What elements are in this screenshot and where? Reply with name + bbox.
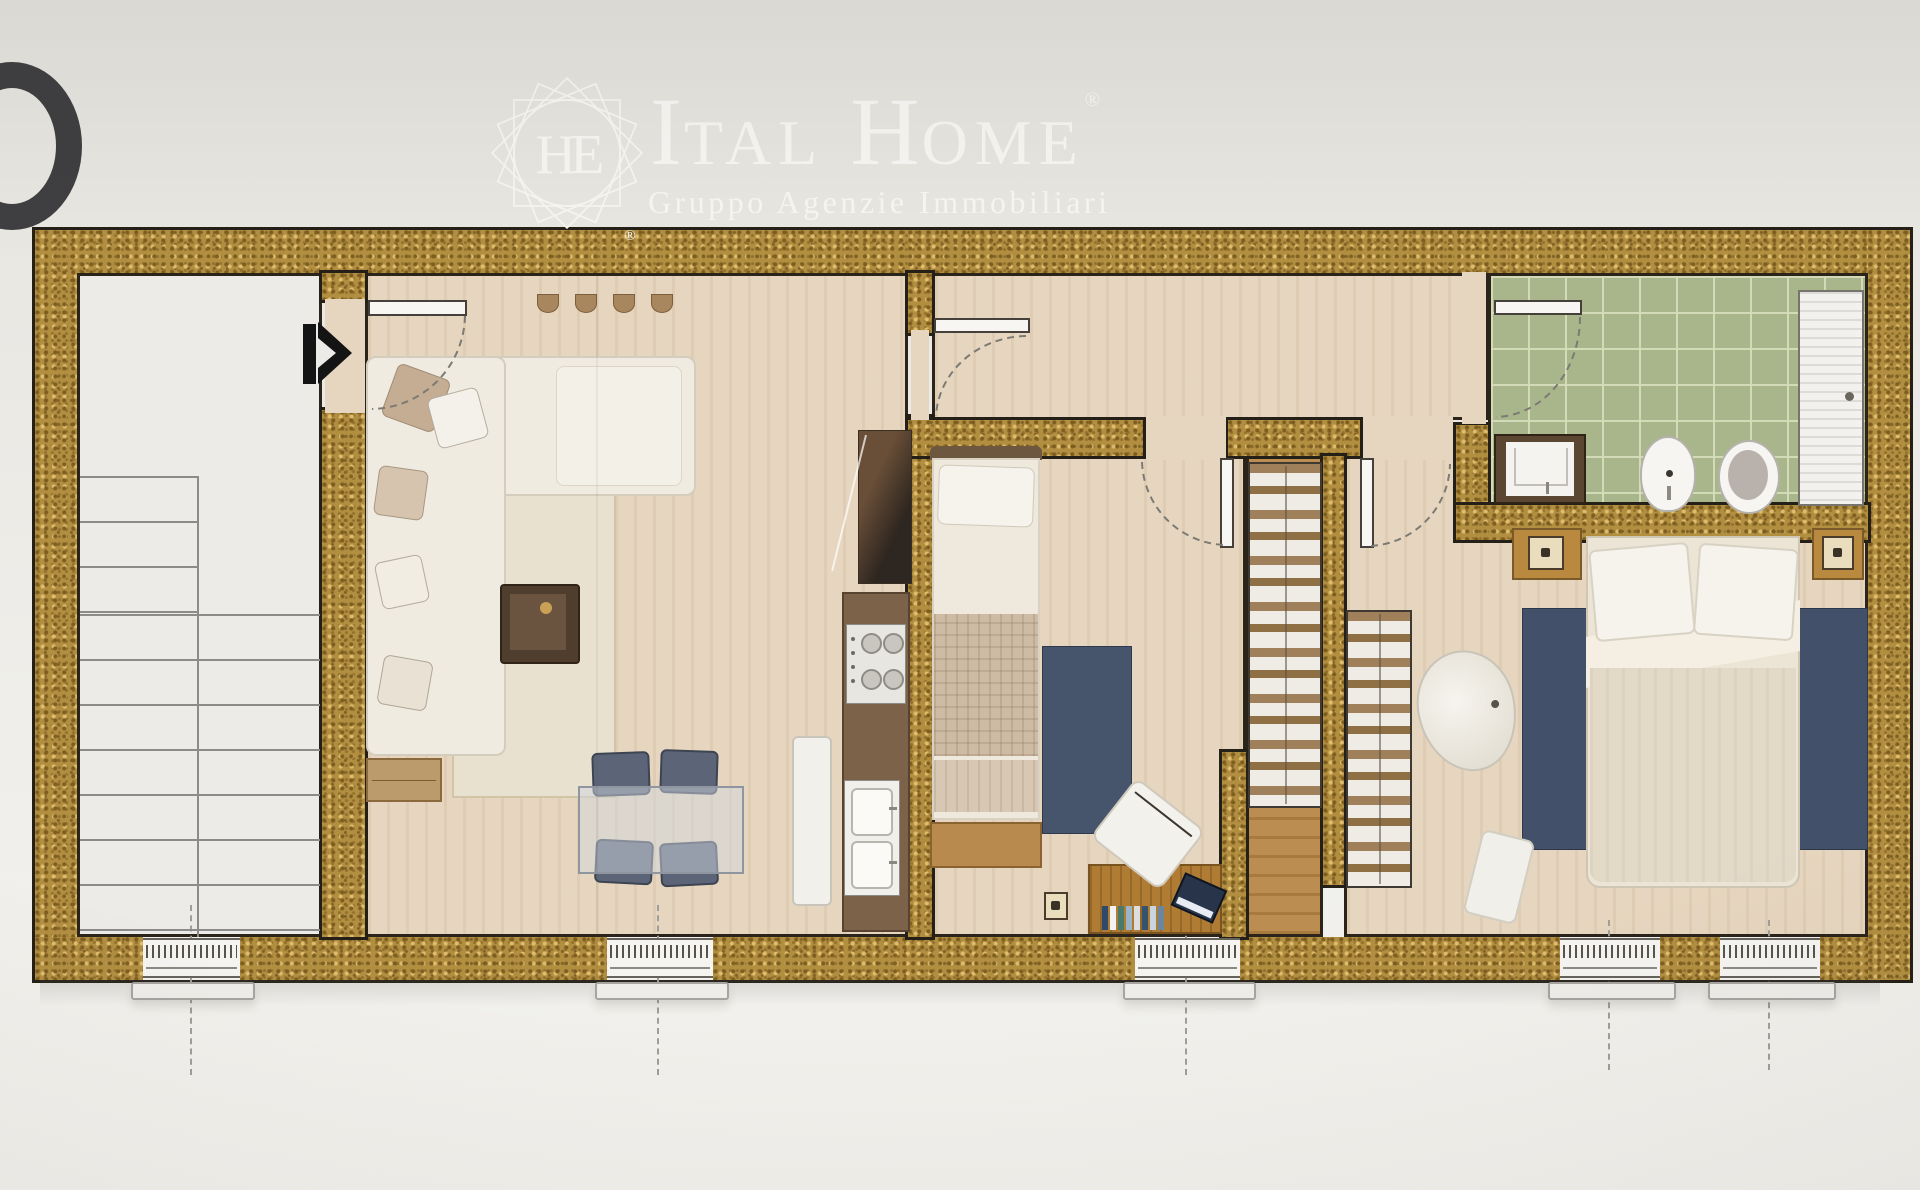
burner-icon [861,669,882,690]
sofa-chaise-cushion [556,366,682,486]
sideboard [366,758,442,802]
bathroom-sink [1506,442,1574,496]
scan-streak [596,240,598,982]
wall-bottom [713,937,1135,980]
door-leaf-main-bedroom [1360,458,1374,548]
book [1110,906,1116,930]
coat-hook-icon [613,294,635,313]
cropped-edge-letter [0,62,82,230]
sofa-pillow [374,554,431,611]
nightstand [1512,528,1582,580]
book [1142,906,1148,930]
kitchen-upper-cabinet [858,430,912,584]
wall-stair-partition [322,410,365,937]
window [1720,938,1820,978]
shower-drain-dot [1845,392,1854,401]
wardrobe [1248,462,1322,808]
brand-letter-i: I [650,78,684,185]
window [143,938,240,978]
door-leaf-bedroom-2 [1220,458,1234,548]
wall-bottom [35,937,143,980]
door-opening-main-bedroom [1363,416,1453,460]
faucet-icon [1546,482,1549,494]
window-sill [1548,982,1676,1000]
door-opening-bedroom-2 [1146,416,1226,460]
single-bed-pillow [937,464,1035,527]
emblem-monogram: HE [536,124,602,186]
bed-pillow [1588,542,1696,642]
agency-logo: HE ® ITALHOME® Gruppo Agenzie Immobiliar… [0,0,1920,260]
window [1135,938,1240,978]
brand-wordmark: ITALHOME® [650,84,1100,180]
bidet-slot [1667,486,1671,500]
photographed-floorplan-page: HE ® ITALHOME® Gruppo Agenzie Immobiliar… [0,0,1920,1190]
burner-icon [883,633,904,654]
nightstand-socket-icon [1822,536,1854,570]
bidet-drain-dot [1666,470,1673,477]
wall-top [35,230,1910,273]
toilet-lid [1728,450,1768,500]
bed-duvet [1590,668,1796,882]
book [1134,906,1140,930]
sofa-pillow [376,654,434,712]
wall-closet-right [1323,456,1344,885]
basin-outline [1514,448,1568,486]
wall-closet-left [1222,752,1246,937]
armchair-dot [1490,699,1499,708]
bed-bench-oak [930,822,1042,868]
table-decor-item [540,602,552,614]
book [1126,906,1132,930]
wall-bottom [1660,937,1720,980]
wall-kitchen-stub [908,273,932,333]
stair-stringer-line [197,476,199,937]
dining-table-glass [578,786,744,874]
sofa-pillow [373,465,429,521]
brand-subtitle: Gruppo Agenzie Immobiliari [648,184,1068,221]
refrigerator [792,736,832,906]
stove-knob [851,637,855,641]
coffee-table-top [510,594,566,650]
coat-hook-icon [537,294,559,313]
door-leaf-living [934,318,1030,333]
door-leaf-bathroom [1494,300,1582,315]
brand-tal: TAL [684,107,824,178]
book [1118,906,1124,930]
stove-cooktop [846,624,906,704]
wall-left [35,230,77,980]
italhome-emblem-icon: HE ® [472,58,662,248]
stove-knob [851,651,855,655]
sideboard-drawer-line [372,780,436,781]
wall-socket-icon [1044,892,1068,920]
wall-corridor-south-b [1228,420,1360,456]
stove-knob [851,679,855,683]
bed-pillow [1693,543,1799,642]
burner-icon [861,633,882,654]
brand-registered-mark: ® [1085,89,1100,111]
door-opening-bathroom [1462,272,1486,424]
wall-bottom [1240,937,1560,980]
nightstand-socket-icon [1528,536,1564,570]
sink-bowl [851,841,893,889]
brand-letter-h: H [850,78,921,185]
book [1158,906,1164,930]
single-bed-blanket [934,614,1038,756]
coat-hook-icon [575,294,597,313]
window-sill [131,982,255,1000]
window-sill [1123,982,1256,1000]
stair-treads-upper [80,476,198,621]
door-opening-entry [325,299,365,413]
wall-right [1868,230,1910,980]
wall-bottom [1820,937,1868,980]
nightstand [1812,528,1864,580]
stove-knob [851,665,855,669]
wardrobe [1346,610,1412,888]
wall-bottom [240,937,607,980]
door-opening-living [911,330,929,420]
window [607,938,713,978]
window-sill [1708,982,1836,1000]
toilet [1718,440,1780,514]
window-sill [595,982,729,1000]
brand-ome: OME [922,107,1085,178]
faucet-icon [889,861,897,864]
burner-icon [883,669,904,690]
book [1150,906,1156,930]
kitchen-sink [844,780,900,896]
bathroom-vanity [1494,434,1586,504]
coffee-table [500,584,580,664]
wall-stair-stub [322,273,365,300]
shower-tray [1798,290,1864,506]
floor-corridor [932,273,1488,420]
door-leaf-entry [368,300,467,316]
bidet [1640,436,1696,512]
window [1560,938,1660,978]
stair-treads-lower [80,614,320,937]
books-row [1102,906,1170,930]
single-bed-blanket-2 [934,760,1038,812]
faucet-icon [889,807,897,810]
book [1102,906,1108,930]
sink-bowl [851,788,893,836]
coat-hook-icon [651,294,673,313]
